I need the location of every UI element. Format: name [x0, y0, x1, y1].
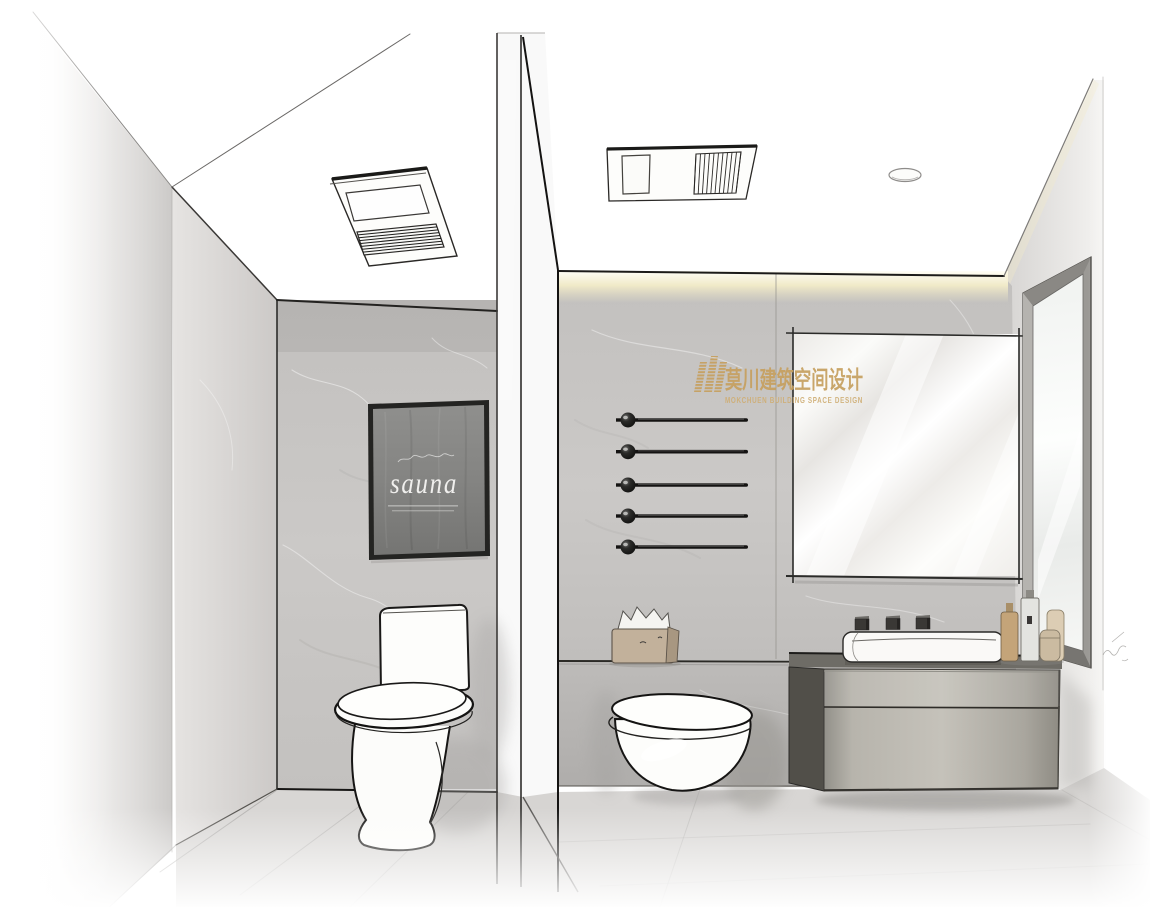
left-fade — [0, 0, 115, 907]
watermark-title-cn: 莫川建筑空间设计 — [725, 366, 863, 394]
amber-bottle — [1001, 612, 1018, 661]
left-wall-top-shade — [277, 300, 497, 352]
faucet-control — [855, 616, 869, 630]
drawer-divider — [824, 707, 1059, 708]
round-downlight — [889, 169, 921, 182]
right-fade — [1088, 0, 1150, 907]
framed-sauna-poster: sauna — [368, 400, 490, 562]
vanity-floor-shadow — [815, 789, 1075, 811]
tissue-box-body — [612, 629, 674, 663]
amber-bottle-neck — [1006, 603, 1013, 613]
panel-square — [622, 155, 650, 194]
vessel-basin — [843, 632, 1003, 665]
bathroom-sketch-svg: sauna — [0, 0, 1150, 907]
poster-caption-line — [392, 510, 454, 511]
faucet-control — [886, 616, 900, 630]
toilet-tank — [380, 605, 469, 693]
rendering-canvas: sauna — [0, 0, 1150, 907]
clear-bottle — [1021, 598, 1039, 661]
round-jar — [1040, 630, 1060, 661]
poster-caption-line — [388, 505, 458, 507]
poster-title-text: sauna — [390, 467, 458, 500]
watermark-subtitle-en: MOKCHUEN BUILDING SPACE DESIGN — [725, 395, 863, 405]
vanity-mirror — [786, 327, 1026, 585]
ceiling-vent-panel-unit — [607, 146, 757, 201]
ceiling-ridge-line — [172, 34, 410, 187]
ceiling-heater-vent-unit — [330, 168, 457, 266]
faucet-control — [916, 615, 930, 629]
left-side-wall — [172, 187, 277, 845]
clear-bottle-label — [1027, 616, 1032, 624]
drawer-sheen — [824, 670, 1060, 706]
floating-vanity-cabinet — [789, 653, 1092, 811]
wall-faucet-controls — [855, 615, 930, 630]
tissue-box-side — [666, 627, 679, 663]
bottom-fade — [0, 808, 1150, 907]
vanity-side-panel — [789, 667, 824, 791]
